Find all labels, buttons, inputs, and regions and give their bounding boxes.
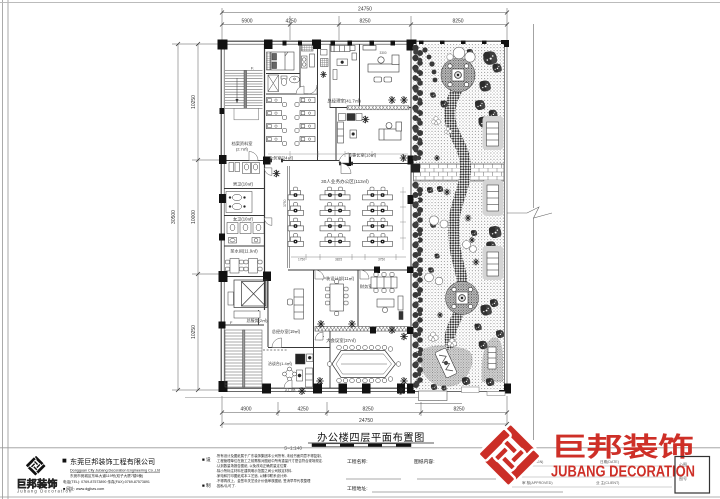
svg-text:.不得再改上、金签年关芝设计价值审核图纸, 签消早早代表整理: .不得再改上、金签年关芝设计价值审核图纸, 签消早早代表整理 [216,478,311,483]
svg-text:工程名称:: 工程名称: [347,458,368,465]
svg-text:.家电和打印图纸成本エ艺追, 以辅印联系设计师.: .家电和打印图纸成本エ艺追, 以辅印联系设计师. [216,473,288,478]
svg-text:洽谈台(1.4㎡): 洽谈台(1.4㎡) [268,360,293,366]
svg-text:(2.7㎡): (2.7㎡) [236,146,249,152]
svg-text:3825: 3825 [335,258,342,262]
svg-text:.工程管理单位在施工之前需核对图纸中所有重量尺寸是否符合现场: .工程管理单位在施工之前需核对图纸中所有重量尺寸是否符合现场规定. [216,458,323,463]
svg-text:■ 网址: www.dgjbzs.com: ■ 网址: www.dgjbzs.com [63,486,104,491]
svg-text:JUBANG DECORATION: JUBANG DECORATION [551,464,695,481]
svg-text:图纸内容:: 图纸内容: [414,458,435,465]
svg-text:东莞市莞城区东纵大道119号(双子大厦7楼9棱): 东莞市莞城区东纵大道119号(双子大厦7楼9棱) [70,473,143,478]
svg-text:总经理室(41.7㎡): 总经理室(41.7㎡) [327,98,361,104]
svg-text:东莞巨邦装饰工程有限公司: 东莞巨邦装饰工程有限公司 [70,457,155,466]
svg-text:F.: F. [251,66,254,71]
svg-text:Dongguan City Jubang Decoratio: Dongguan City Jubang Decoration Engineer… [70,469,160,473]
svg-text:30人业务办公区(113㎡): 30人业务办公区(113㎡) [321,178,369,185]
svg-text:3750: 3750 [283,199,287,207]
svg-text:董事长室(13㎡): 董事长室(13㎡) [348,152,377,159]
svg-text:男卫(10㎡): 男卫(10㎡) [233,181,254,188]
svg-text:5900: 5900 [241,19,252,25]
svg-text:业 主(CLIENT): 业 主(CLIENT) [596,480,619,485]
svg-text:电话(TEL): 0769-87573890 传真(F: 电话(TEL): 0769-87573890 传真(FAX):0769-8757… [63,479,150,484]
svg-text:8250: 8250 [359,19,370,25]
svg-text:10250: 10250 [191,95,197,109]
svg-text:8250: 8250 [453,407,464,413]
svg-text:巨邦装饰: 巨邦装饰 [551,432,694,462]
svg-text:8250: 8250 [362,407,373,413]
svg-text:图号: 图号 [679,475,687,481]
svg-text:办公楼四层平面布置图: 办公楼四层平面布置图 [317,431,425,444]
svg-text:■ 制: ■ 制 [202,482,211,489]
svg-text:4900: 4900 [240,407,251,413]
svg-text:茶水间(11.9㎡): 茶水间(11.9㎡) [230,248,258,255]
svg-text:10250: 10250 [191,325,197,339]
svg-text:3300: 3300 [379,51,386,55]
svg-text:心图: 心图 [679,461,687,467]
svg-text:.因私/认可了.: .因私/认可了. [216,483,236,488]
svg-text:3750: 3750 [378,258,385,262]
svg-text:■ 设: ■ 设 [202,456,211,463]
svg-text:24750: 24750 [358,7,372,13]
svg-text:■: ■ [62,456,67,465]
svg-text:大会议室(37㎡): 大会议室(37㎡) [326,337,356,344]
svg-text:24750: 24750 [359,418,373,424]
svg-text:审 核(APPROVED): 审 核(APPROVED) [522,480,553,485]
svg-text:4250: 4250 [285,19,296,25]
svg-text:.除小所标注材料在建筑明示范围之间公司核定材料.: .除小所标注材料在建筑明示范围之间公司核定材料. [216,468,293,473]
svg-text:S=1:140: S=1:140 [284,446,302,452]
svg-text:.认到数量场报告图纸, 以免改动正确质量定位置.: .认到数量场报告图纸, 以免改动正确质量定位置. [216,463,288,468]
svg-text:女卫(10㎡): 女卫(10㎡) [233,216,254,223]
svg-text:.所有设计及图纸属于广东装饰集团本公司所有, 未经书面同意不: .所有设计及图纸属于广东装饰集团本公司所有, 未经书面同意不得复制、 [216,453,324,458]
svg-text:30500: 30500 [171,210,177,224]
svg-text:4250: 4250 [297,407,308,413]
svg-text:总经办室(19㎡): 总经办室(19㎡) [272,328,301,335]
svg-text:工程地址:: 工程地址: [347,485,368,492]
svg-text:8250: 8250 [452,19,463,25]
svg-text:10000: 10000 [191,210,197,224]
svg-text:1750: 1750 [298,258,305,262]
